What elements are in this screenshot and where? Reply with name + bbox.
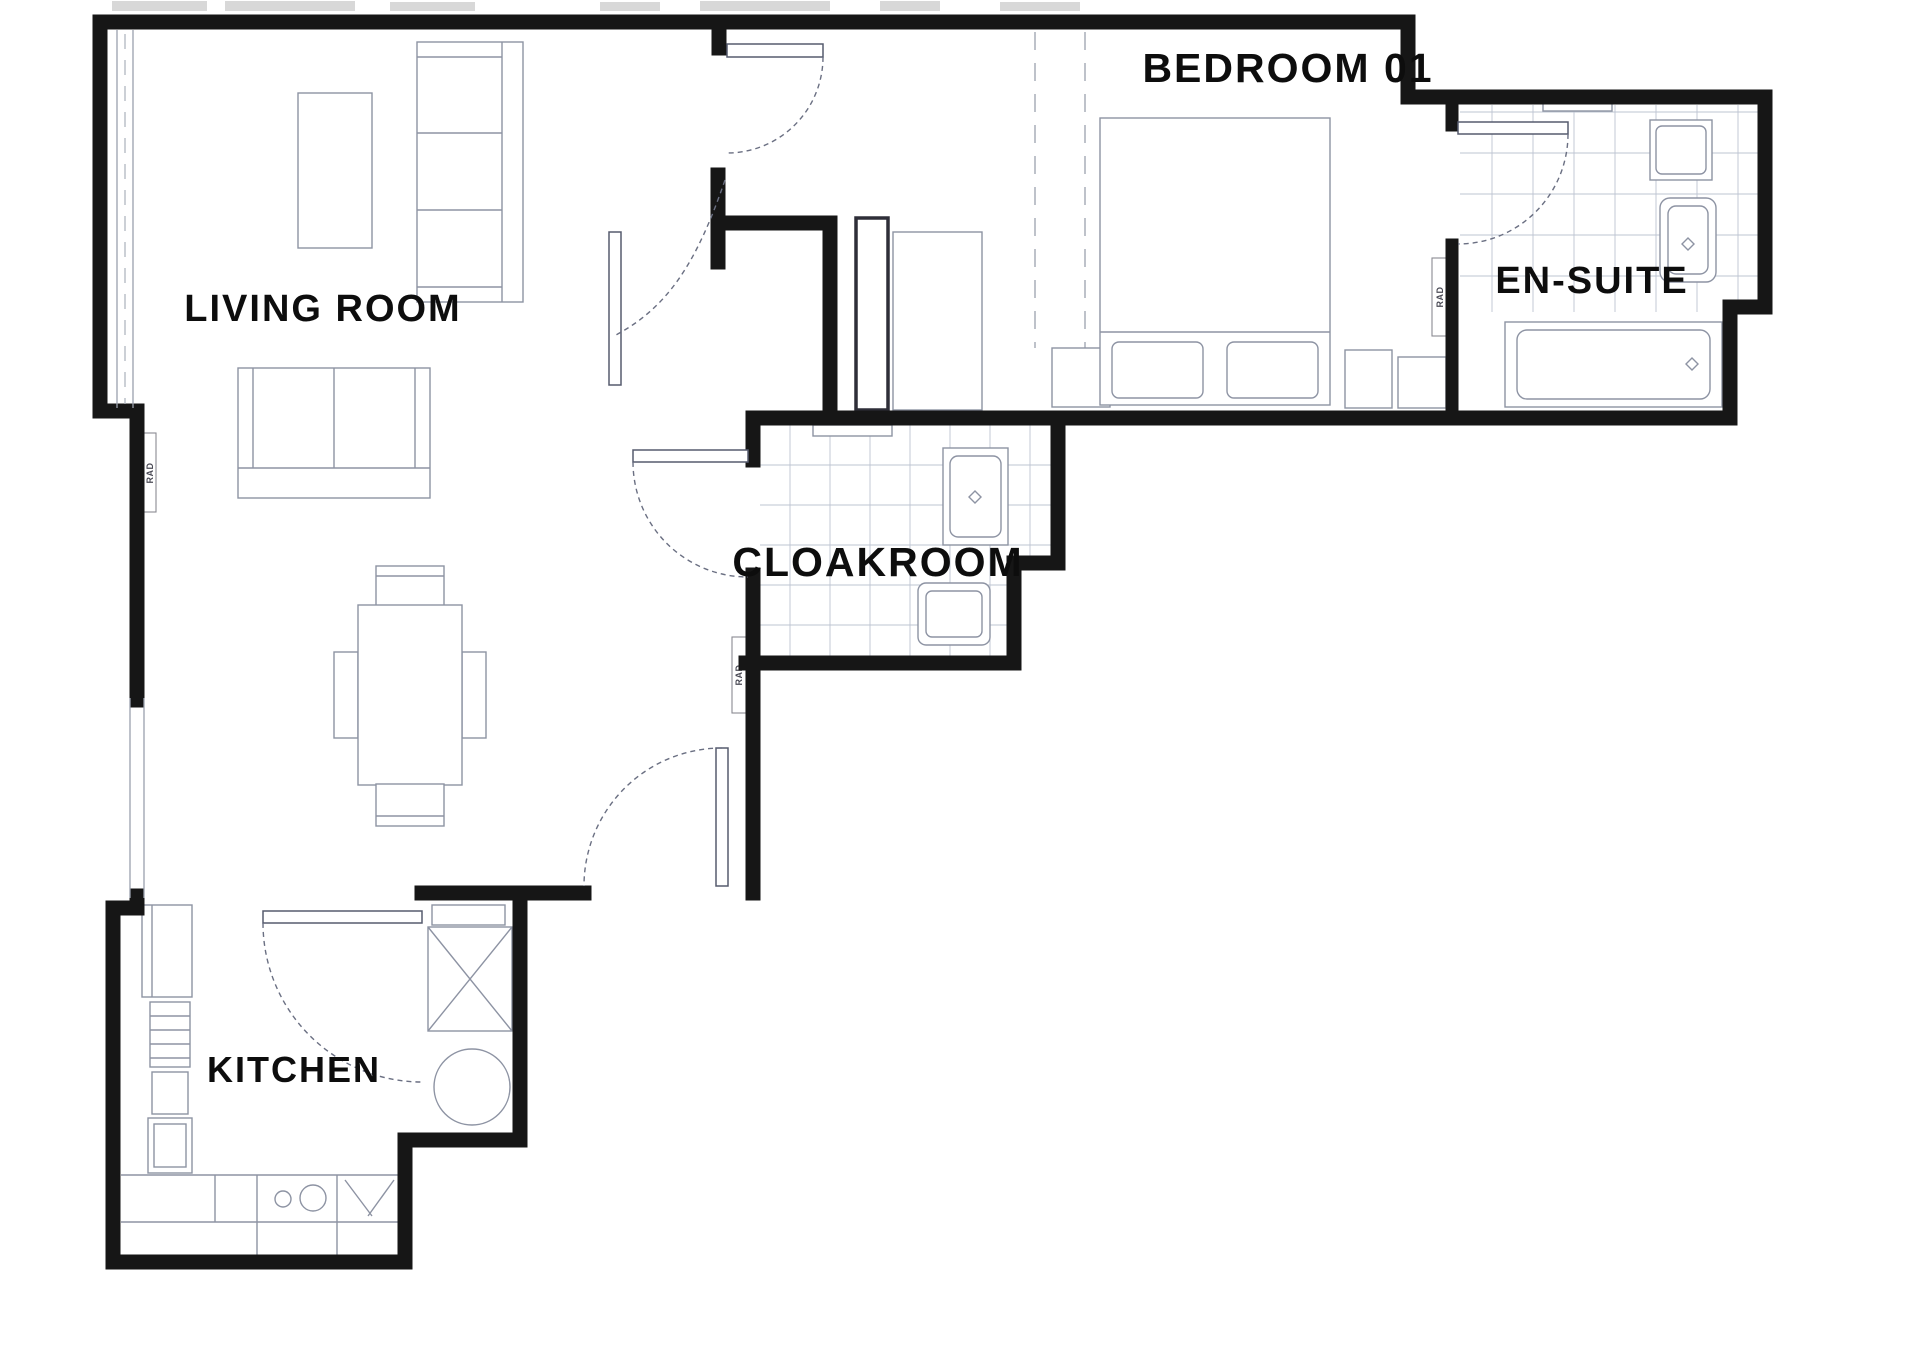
base-unit [148,1118,192,1173]
oven-unit [150,1002,190,1067]
door-swing-arc [727,57,823,153]
sofa-small [238,368,430,498]
ensuite-door [1458,122,1568,244]
floor-plan-drawing: RAD RAD RAD [0,0,1920,1353]
room-label-en-suite: EN-SUITE [1495,260,1688,302]
wardrobe [893,232,982,410]
kitchen-counter [121,1175,400,1255]
cloakroom-fixtures [813,425,1008,645]
door-swing-arc [633,462,748,577]
door-leaf [716,748,728,886]
pillow [1112,342,1203,398]
washbasin-cloakroom [943,448,1008,545]
tall-cupboard [856,218,888,410]
door-leaf [727,44,823,57]
room-label-kitchen: KITCHEN [207,1049,381,1090]
inner-hall-door [584,748,728,886]
door-leaf [633,450,748,462]
worktop-unit [432,905,505,925]
kitchen-window [130,698,144,898]
boiler-cupboard [428,927,512,1031]
sideboard [298,93,372,248]
sink-bowl [300,1185,326,1211]
bedside-table [1345,350,1392,408]
fridge-unit [142,905,192,997]
sink-bowl [275,1191,291,1207]
base-unit [152,1072,188,1114]
radiator-label: RAD [145,463,155,484]
room-label-cloakroom: CLOAKROOM [732,539,1023,585]
living-room-furniture [238,42,523,826]
living-room-door [609,180,725,385]
dining-chair [376,784,444,826]
entrance-door [727,44,823,153]
washbasin-ensuite [1650,120,1712,180]
scan-artifacts [112,1,1080,11]
door-leaf [609,232,621,385]
ensuite-fixtures [1505,101,1722,407]
door-swing-arc [614,180,725,336]
dining-table-set [334,566,486,826]
floor-plan: RAD RAD RAD [0,0,1920,1353]
drainer [345,1180,394,1216]
door-swing-arc [1458,134,1568,244]
dining-chair [462,652,486,738]
door-swing-arc [584,748,722,886]
outer-wall-left [100,22,137,700]
living-room-window [117,30,133,408]
hallway-wall [718,175,830,415]
dining-table [358,605,462,785]
door-leaf [263,911,422,923]
double-bed [1100,118,1330,405]
room-label-living-room: LIVING ROOM [184,288,461,330]
dining-chair [334,652,358,738]
shelf [813,425,892,436]
sofa-large [417,42,523,302]
dining-chair [376,566,444,606]
pillow [1227,342,1318,398]
toilet-cloakroom [918,583,990,645]
washing-machine [434,1049,510,1125]
bathtub [1505,322,1722,407]
radiator-label: RAD [1435,287,1445,308]
room-label-bedroom-01: BEDROOM 01 [1142,45,1433,91]
bedside-table [1398,357,1446,408]
cloakroom-door [633,450,748,577]
door-leaf [1458,122,1568,134]
